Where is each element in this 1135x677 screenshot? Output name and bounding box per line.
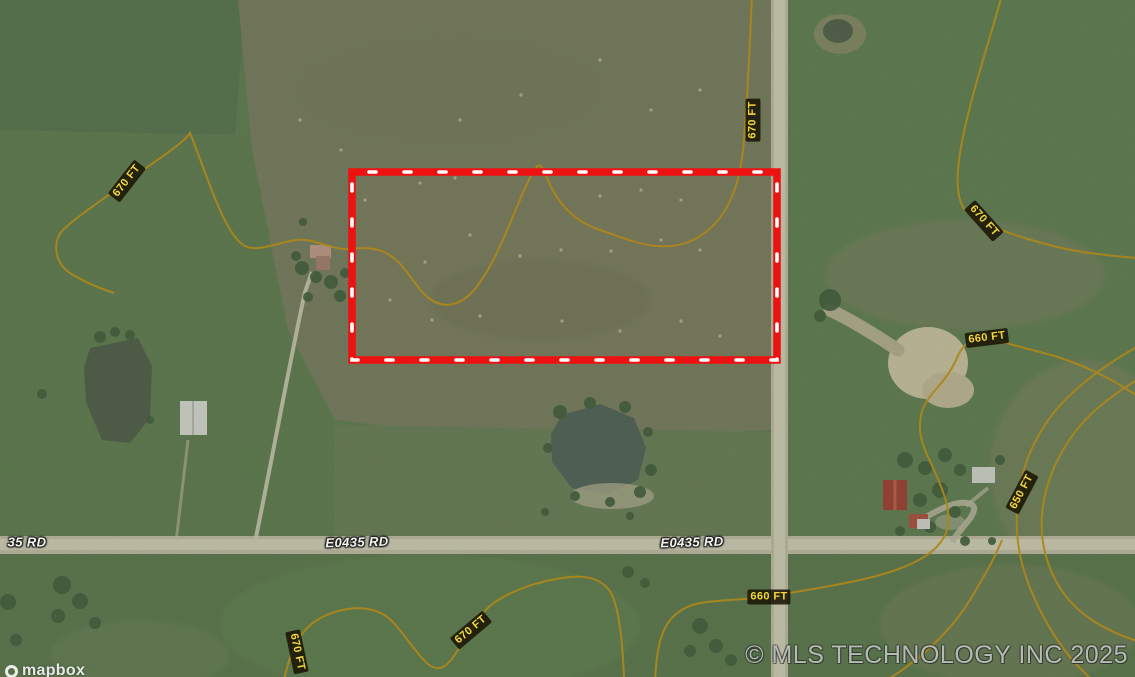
mapbox-icon: [5, 665, 18, 677]
map-imagery: [0, 0, 1135, 677]
satellite-map-canvas[interactable]: 670 FT 670 FT 670 FT 660 FT 650 FT 660 F…: [0, 0, 1135, 677]
mapbox-wordmark: mapbox: [22, 662, 85, 677]
terrain-grain: [0, 0, 1135, 677]
mapbox-logo[interactable]: mapbox: [5, 662, 85, 677]
